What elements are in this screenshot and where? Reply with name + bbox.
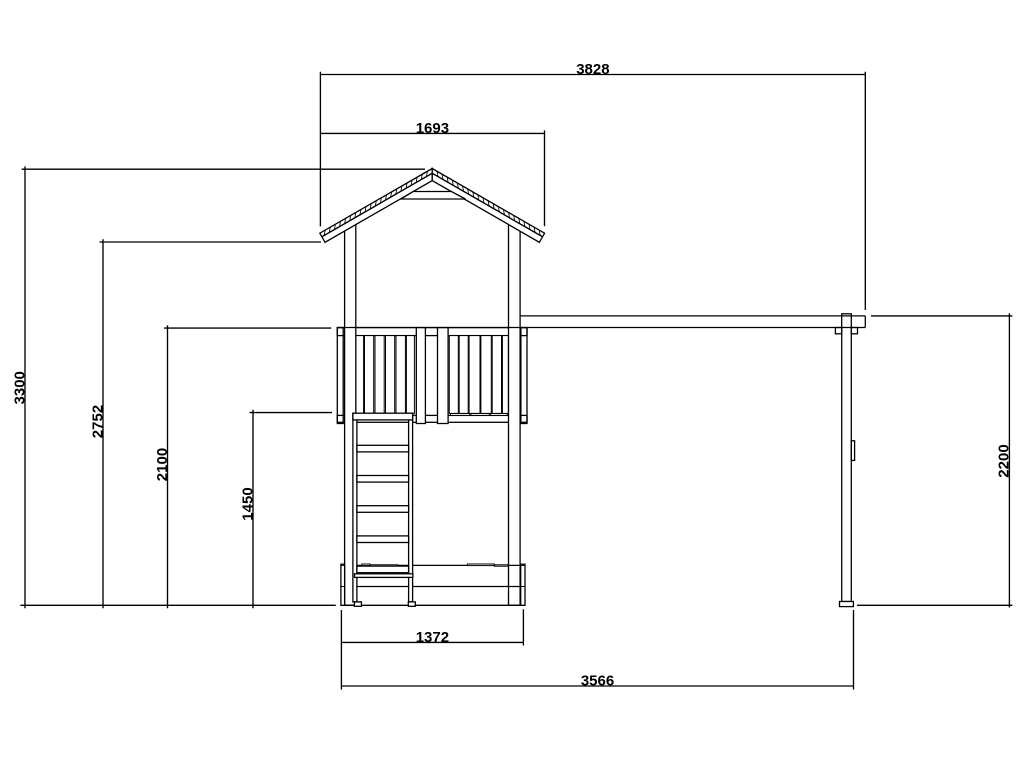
svg-text:3566: 3566 bbox=[581, 673, 614, 690]
svg-text:1693: 1693 bbox=[416, 120, 449, 137]
svg-text:2100: 2100 bbox=[154, 448, 171, 481]
svg-text:3300: 3300 bbox=[11, 371, 28, 404]
svg-text:2752: 2752 bbox=[89, 405, 106, 438]
svg-text:1372: 1372 bbox=[416, 629, 449, 646]
svg-text:2200: 2200 bbox=[996, 444, 1013, 477]
svg-text:3828: 3828 bbox=[576, 61, 609, 78]
svg-text:1450: 1450 bbox=[239, 487, 256, 520]
